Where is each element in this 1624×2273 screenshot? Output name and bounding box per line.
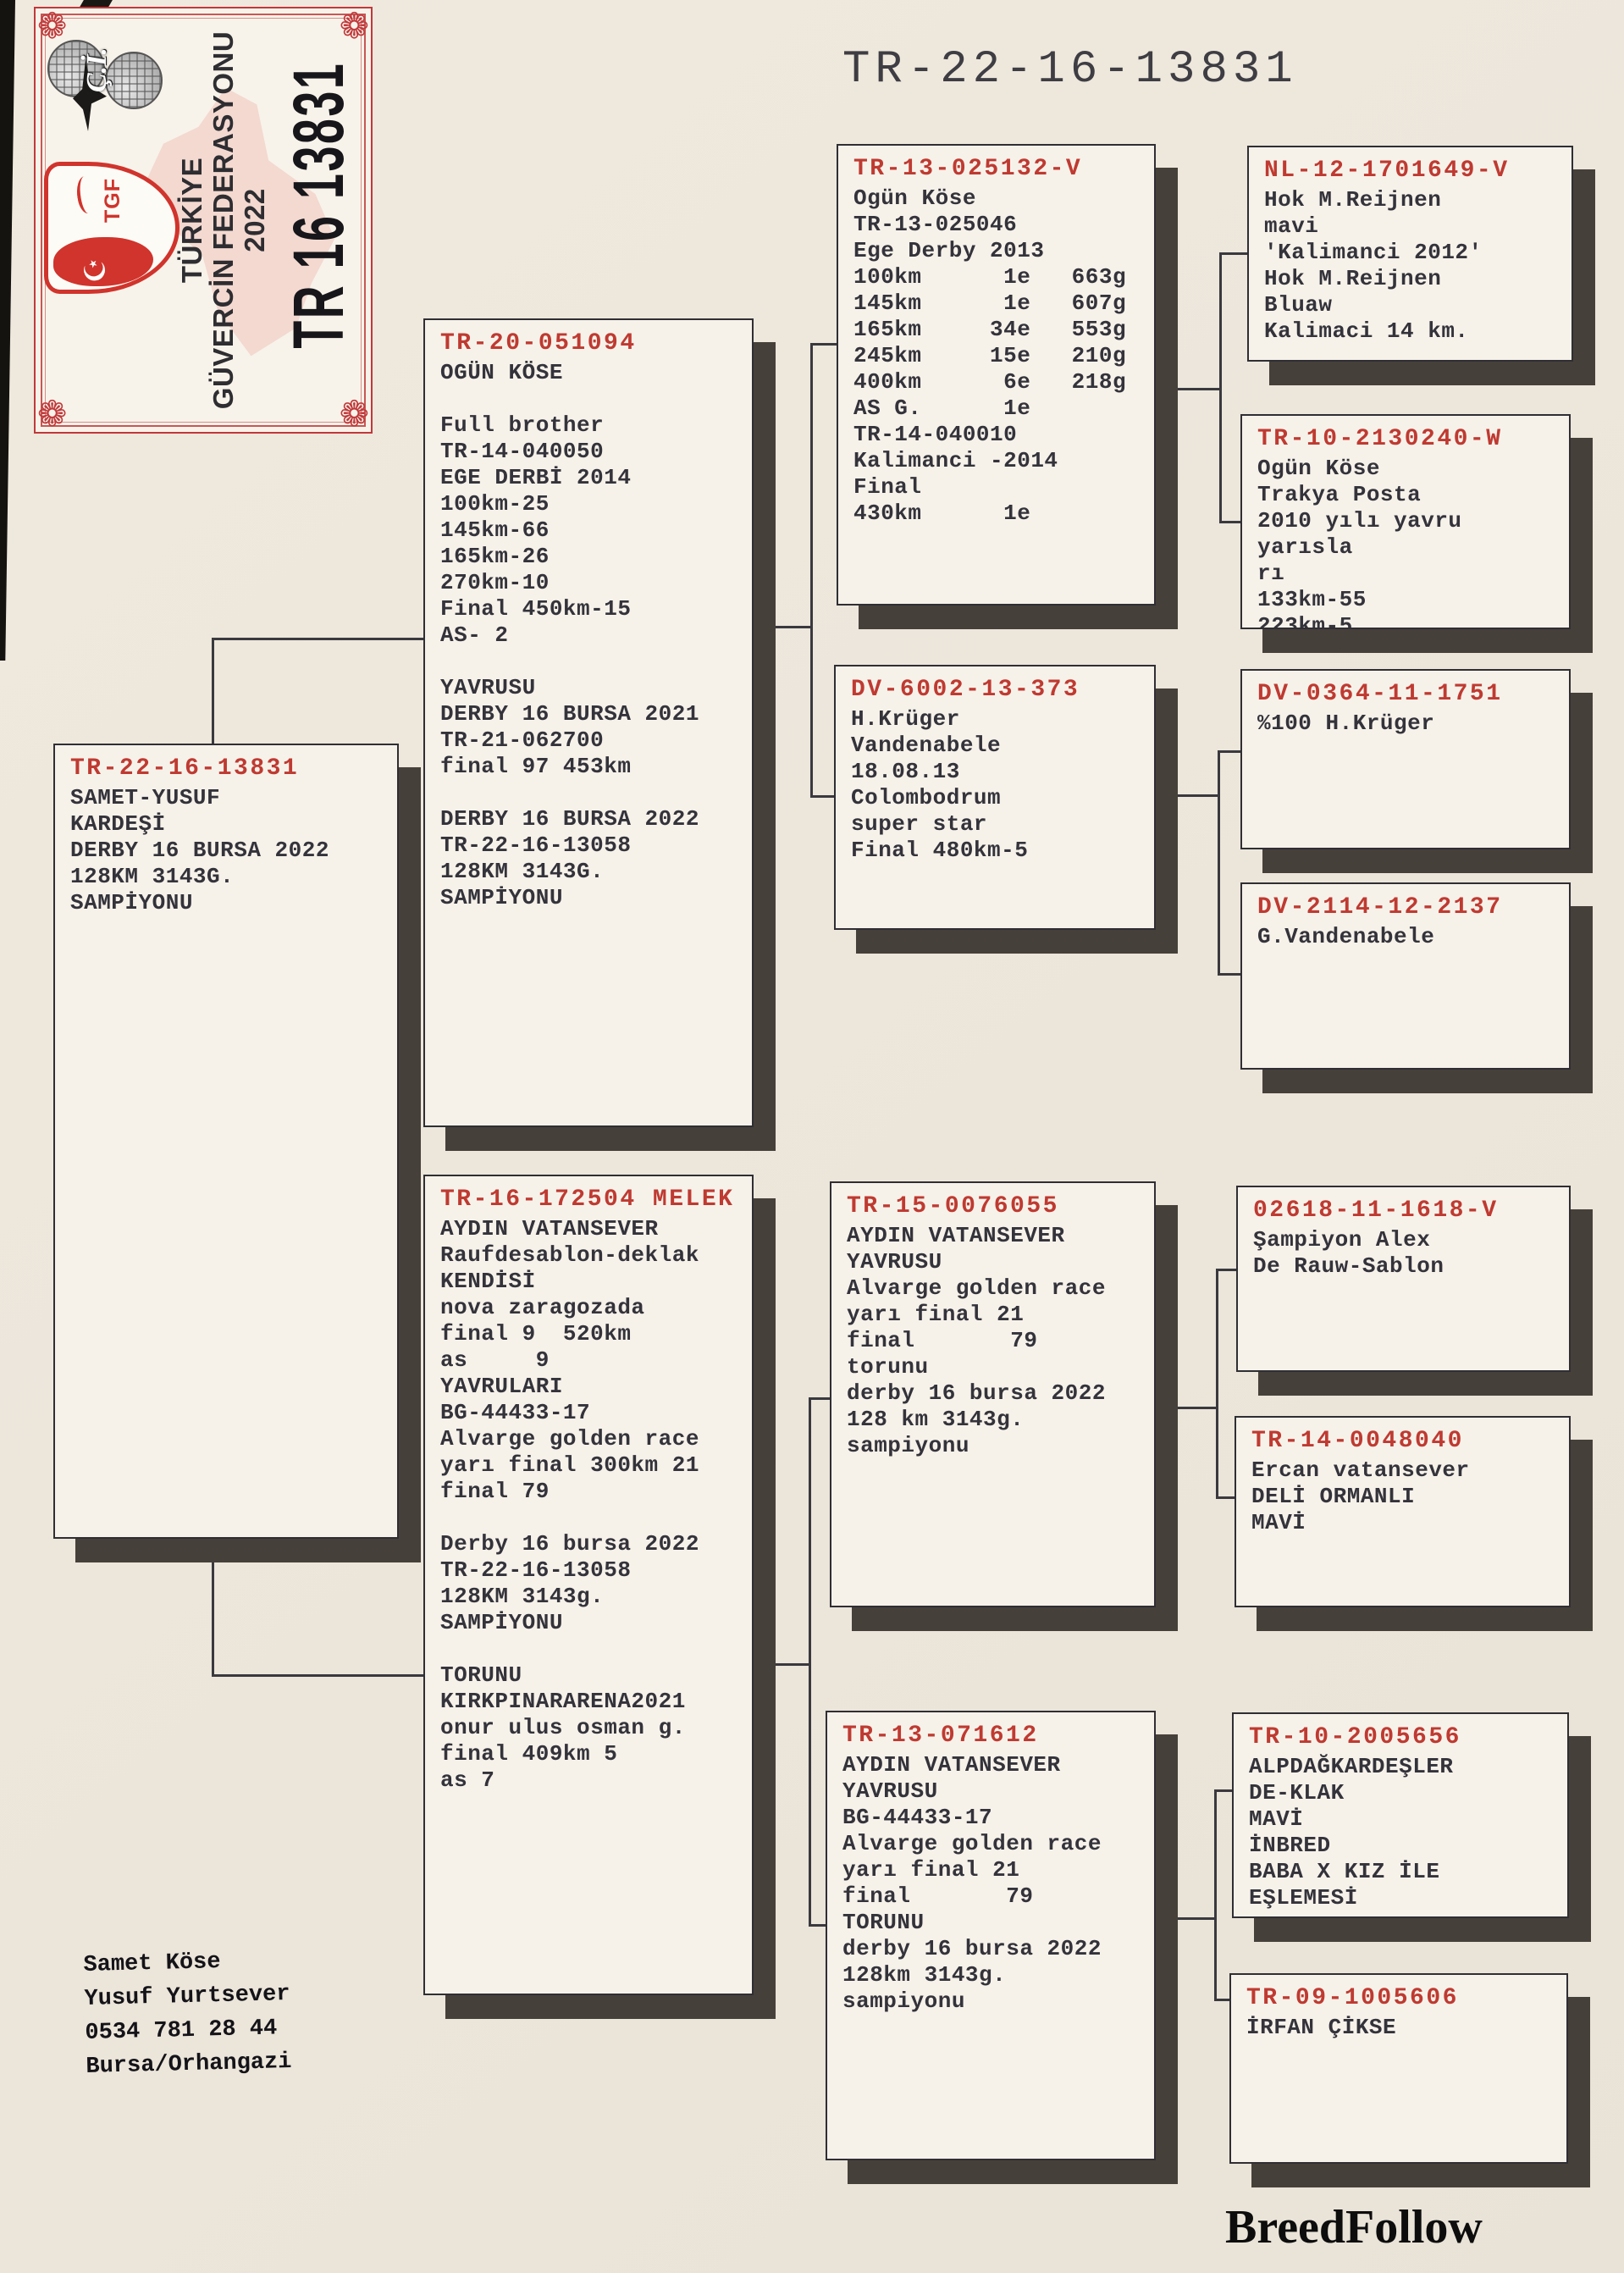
connector-line: [754, 1663, 811, 1666]
ring-number: TR-10-2130240-W: [1257, 426, 1554, 452]
connector-line: [754, 626, 813, 628]
ring-number: TR-13-025132-V: [853, 156, 1139, 182]
ring-number: NL-12-1701649-V: [1264, 158, 1556, 184]
connector-line: [212, 638, 425, 640]
box-details: Ogün Köse Trakya Posta 2010 yılı yavru y…: [1257, 456, 1554, 629]
pedigree-box-ancestor: NL-12-1701649-V Hok M.Reijnen mavi 'Kali…: [1247, 146, 1573, 362]
owner-contact: Samet Köse Yusuf Yurtsever 0534 781 28 4…: [83, 1944, 292, 2084]
box-details: SAMET-YUSUF KARDEŞİ DERBY 16 BURSA 2022 …: [70, 785, 382, 916]
connector-line: [1214, 1789, 1217, 2001]
connector-line: [1219, 252, 1250, 255]
federation-line2: GÜVERCİN FEDERASYONU: [207, 19, 239, 421]
connector-line: [1219, 521, 1243, 523]
federation-title: TÜRKİYE GÜVERCİN FEDERASYONU 2022: [176, 19, 270, 421]
box-details: OGÜN KÖSE Full brother TR-14-040050 EGE …: [440, 360, 737, 911]
connector-line: [810, 343, 813, 798]
connector-line: [810, 343, 839, 346]
connector-line: [1218, 750, 1243, 753]
ring-number: TR-16-172504 MELEK: [440, 1186, 737, 1213]
ring-number: TR-09-1005606: [1246, 1985, 1551, 2011]
pedigree-box-ancestor: TR-14-0048040 Ercan vatansever DELİ ORMA…: [1235, 1416, 1571, 1607]
pedigree-box-ancestor: TR-10-2130240-W Ogün Köse Trakya Posta 2…: [1240, 414, 1571, 629]
ring-number: TR-14-0048040: [1251, 1428, 1554, 1454]
ring-number: TR-10-2005656: [1249, 1724, 1552, 1750]
ring-number: DV-0364-11-1751: [1257, 681, 1554, 707]
ring-number: TR-13-071612: [842, 1723, 1139, 1749]
ring-number: TR-22-16-13831: [70, 755, 382, 782]
connector-line: [1156, 388, 1221, 390]
connector-line: [212, 1539, 214, 1677]
connector-line: [1218, 973, 1243, 976]
pedigree-box-grandsire: TR-15-0076055 AYDIN VATANSEVER YAVRUSU A…: [830, 1181, 1156, 1607]
federation-year: 2022: [239, 19, 270, 421]
certificate-content: ☪ TGF Ç.İ. TÜRKİYE GÜVERCİN FEDERASYONU …: [42, 19, 364, 421]
box-details: AYDIN VATANSEVER YAVRUSU BG-44433-17 Alv…: [842, 1752, 1139, 2015]
page-title: TR-22-16-13831: [842, 44, 1298, 96]
globe-pigeon-logo: Ç.İ.: [47, 25, 166, 126]
pedigree-document: ❁ ❁ ❁ ❁ ☪ TGF Ç.İ. TÜRKİYE GÜVERCİN FEDE…: [0, 0, 1624, 2273]
federation-certificate: ❁ ❁ ❁ ❁ ☪ TGF Ç.İ. TÜRKİYE GÜVERCİN FEDE…: [34, 7, 373, 434]
pedigree-box-grandsire: TR-13-025132-V Ogün Köse TR-13-025046 Eg…: [837, 144, 1156, 606]
pedigree-box-granddam: DV-6002-13-373 H.Krüger Vandenabele 18.0…: [834, 665, 1156, 930]
box-details: ALPDAĞKARDEŞLER DE-KLAK MAVİ İNBRED BABA…: [1249, 1754, 1552, 1911]
box-details: G.Vandenabele: [1257, 924, 1554, 950]
pedigree-box-ancestor: DV-0364-11-1751 %100 H.Krüger: [1240, 669, 1571, 849]
pedigree-box-ancestor: 02618-11-1618-V Şampiyon Alex De Rauw-Sa…: [1236, 1186, 1571, 1372]
ring-number: DV-6002-13-373: [851, 677, 1139, 703]
ring-number: 02618-11-1618-V: [1253, 1197, 1554, 1224]
connector-line: [809, 1397, 832, 1400]
scan-edge-artifact: [0, 0, 15, 661]
box-details: Ercan vatansever DELİ ORMANLI MAVİ: [1251, 1457, 1554, 1536]
monogram-label: Ç.İ.: [81, 47, 113, 92]
pedigree-box-ancestor: DV-2114-12-2137 G.Vandenabele: [1240, 882, 1571, 1070]
box-details: %100 H.Krüger: [1257, 711, 1554, 737]
crest-label: TGF: [101, 178, 125, 223]
pedigree-box-subject: TR-22-16-13831 SAMET-YUSUF KARDEŞİ DERBY…: [53, 744, 399, 1539]
box-details: Hok M.Reijnen mavi 'Kalimanci 2012' Hok …: [1264, 187, 1556, 345]
pedigree-box-sire: TR-20-051094 OGÜN KÖSE Full brother TR-1…: [423, 318, 754, 1127]
crest-pigeon-icon: [74, 174, 98, 214]
globe-icon: [105, 52, 163, 109]
box-details: İRFAN ÇİKSE: [1246, 2015, 1551, 2041]
connector-line: [1219, 252, 1222, 523]
box-details: H.Krüger Vandenabele 18.08.13 Colombodru…: [851, 706, 1139, 864]
federation-line1: TÜRKİYE: [176, 19, 207, 421]
pedigree-box-ancestor: TR-09-1005606 İRFAN ÇİKSE: [1229, 1973, 1568, 2164]
connector-line: [809, 1397, 811, 1927]
ring-number: TR-20-051094: [440, 330, 737, 357]
box-details: Ogün Köse TR-13-025046 Ege Derby 2013 10…: [853, 185, 1139, 527]
connector-line: [212, 638, 214, 745]
box-details: AYDIN VATANSEVER Raufdesablon-deklak KEN…: [440, 1216, 737, 1794]
pedigree-box-ancestor: TR-10-2005656 ALPDAĞKARDEŞLER DE-KLAK MA…: [1232, 1712, 1569, 1918]
connector-line: [1218, 750, 1220, 976]
connector-line: [1216, 1269, 1218, 1499]
ring-number: TR-15-0076055: [847, 1193, 1139, 1219]
connector-line: [1156, 1917, 1216, 1920]
pedigree-box-dam: TR-16-172504 MELEK AYDIN VATANSEVER Rauf…: [423, 1175, 754, 1995]
box-details: AYDIN VATANSEVER YAVRUSU Alvarge golden …: [847, 1223, 1139, 1459]
connector-line: [212, 1674, 425, 1677]
ring-number: DV-2114-12-2137: [1257, 894, 1554, 921]
connector-line: [1156, 794, 1219, 797]
pedigree-box-granddam: TR-13-071612 AYDIN VATANSEVER YAVRUSU BG…: [826, 1711, 1156, 2160]
box-details: Şampiyon Alex De Rauw-Sablon: [1253, 1227, 1554, 1280]
connector-line: [1156, 1407, 1218, 1409]
ring-number-stamp: TR 16 13831: [278, 91, 360, 348]
brand-logo: BreedFollow: [1225, 2200, 1483, 2254]
